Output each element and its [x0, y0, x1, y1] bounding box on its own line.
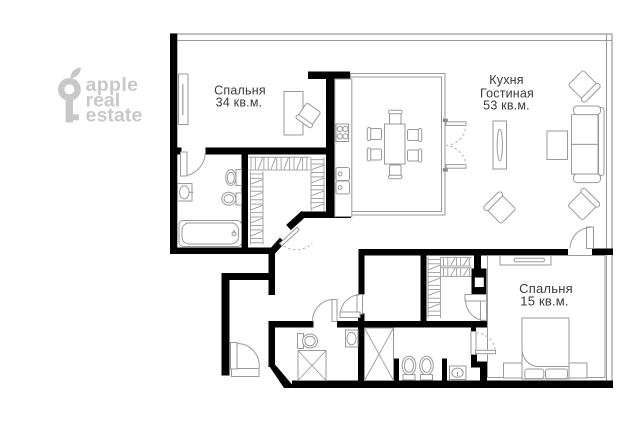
svg-text:estate: estate [86, 105, 143, 127]
svg-text:34 кв.м.: 34 кв.м. [216, 96, 263, 110]
svg-text:15 кв.м.: 15 кв.м. [520, 294, 568, 309]
svg-text:53 кв.м.: 53 кв.м. [483, 99, 530, 113]
svg-text:Кухня: Кухня [489, 73, 523, 87]
